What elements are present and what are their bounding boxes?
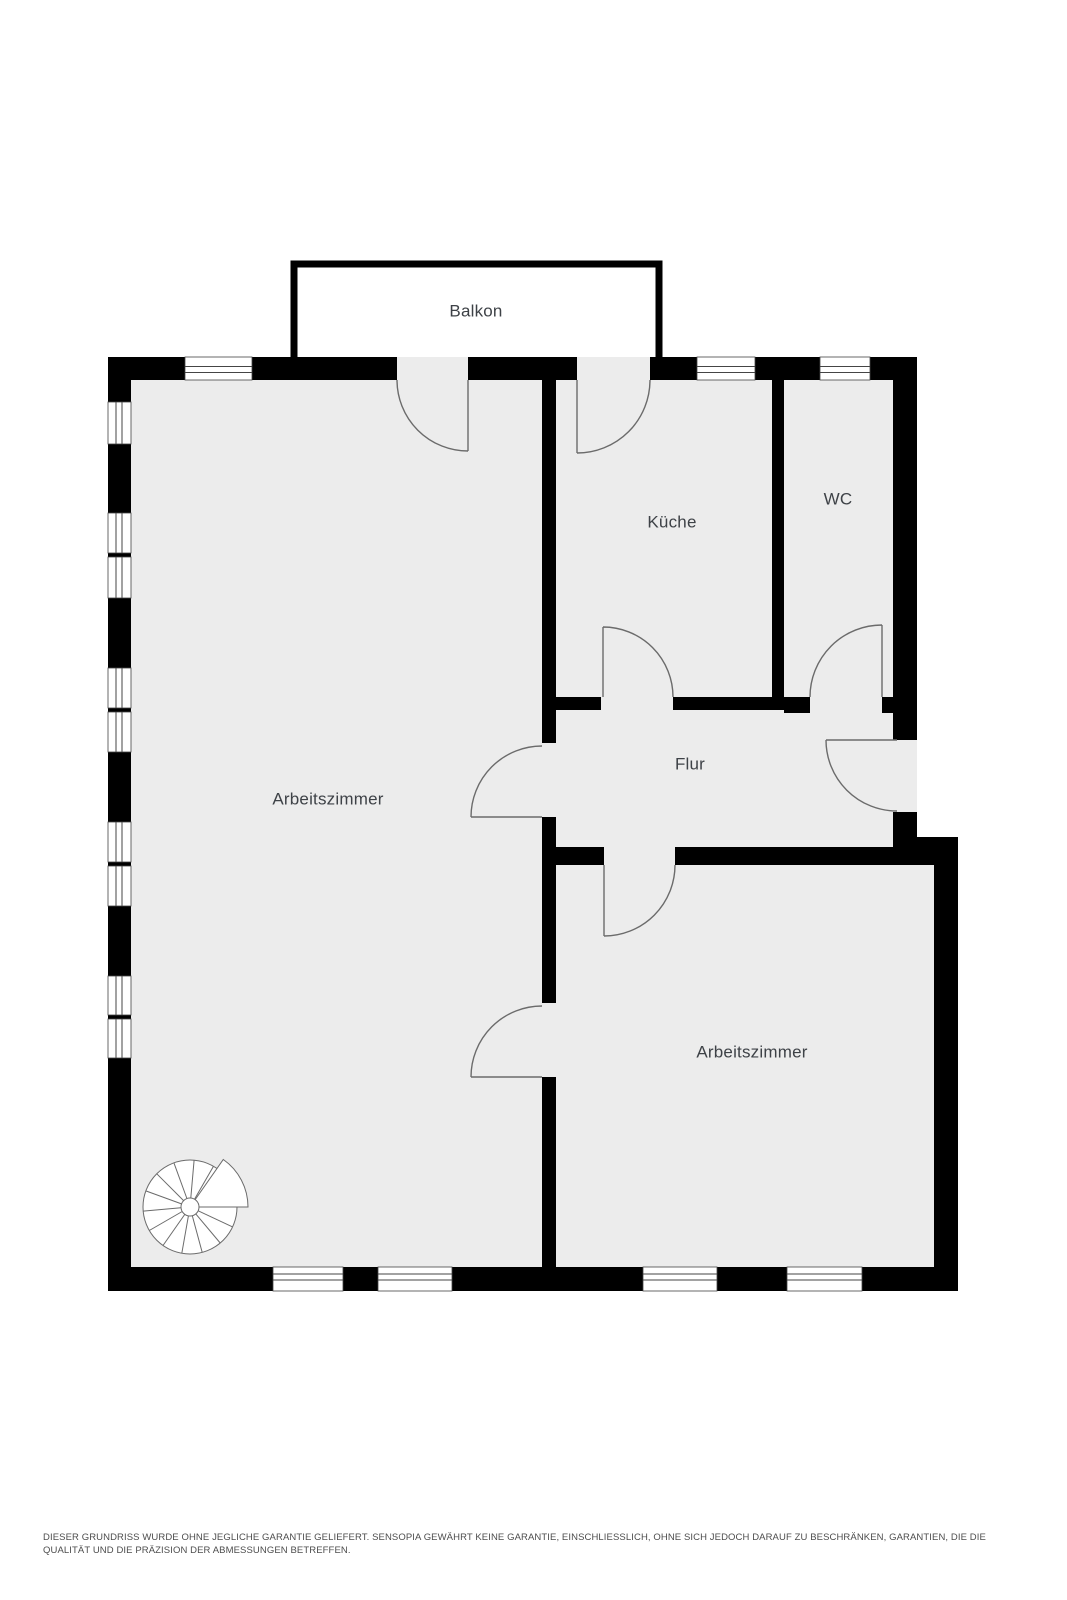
- window-bottom-2: [378, 1267, 452, 1291]
- floor-plan-page: BalkonKücheWCFlurArbeitszimmerArbeitszim…: [0, 0, 1067, 1600]
- opening-entrance: [893, 740, 917, 812]
- room-label-balkon: Balkon: [449, 301, 502, 320]
- floor-plan-svg: BalkonKücheWCFlurArbeitszimmerArbeitszim…: [0, 0, 1067, 1600]
- window-bottom-3: [643, 1267, 717, 1291]
- opening-wc: [810, 697, 882, 713]
- wall-kueche-wc: [772, 380, 784, 710]
- window-bottom-4: [787, 1267, 862, 1291]
- disclaimer-line-2: QUALITÄT UND DIE PRÄZISION DER ABMESSUNG…: [43, 1544, 1033, 1557]
- wall-central: [542, 380, 556, 1267]
- room-label-flur: Flur: [675, 754, 705, 773]
- opening-flur-zimmer1: [542, 743, 556, 817]
- room-label-wc: WC: [824, 489, 853, 508]
- window-bottom-1: [273, 1267, 343, 1291]
- opening-flur-zimmer2: [604, 847, 675, 865]
- disclaimer-text: DIESER GRUNDRISS WURDE OHNE JEGLICHE GAR…: [43, 1531, 1033, 1557]
- wall-right-lower: [934, 837, 958, 1291]
- window-top-3: [820, 357, 870, 380]
- window-top-2: [697, 357, 755, 380]
- opening-kueche: [601, 697, 673, 710]
- room-label-arbeitszimmer-2: Arbeitszimmer: [696, 1042, 807, 1061]
- floor-main: [115, 365, 905, 1280]
- window-left-1: [108, 402, 131, 444]
- opening-balcony-zimmer1: [397, 357, 468, 380]
- room-label-arbeitszimmer-1: Arbeitszimmer: [272, 789, 383, 808]
- disclaimer-line-1: DIESER GRUNDRISS WURDE OHNE JEGLICHE GAR…: [43, 1531, 1033, 1544]
- opening-zimmer1-zimmer2: [542, 1003, 556, 1077]
- opening-balcony-kueche: [577, 357, 650, 380]
- room-label-kueche: Küche: [647, 512, 696, 531]
- window-top-1: [185, 357, 252, 380]
